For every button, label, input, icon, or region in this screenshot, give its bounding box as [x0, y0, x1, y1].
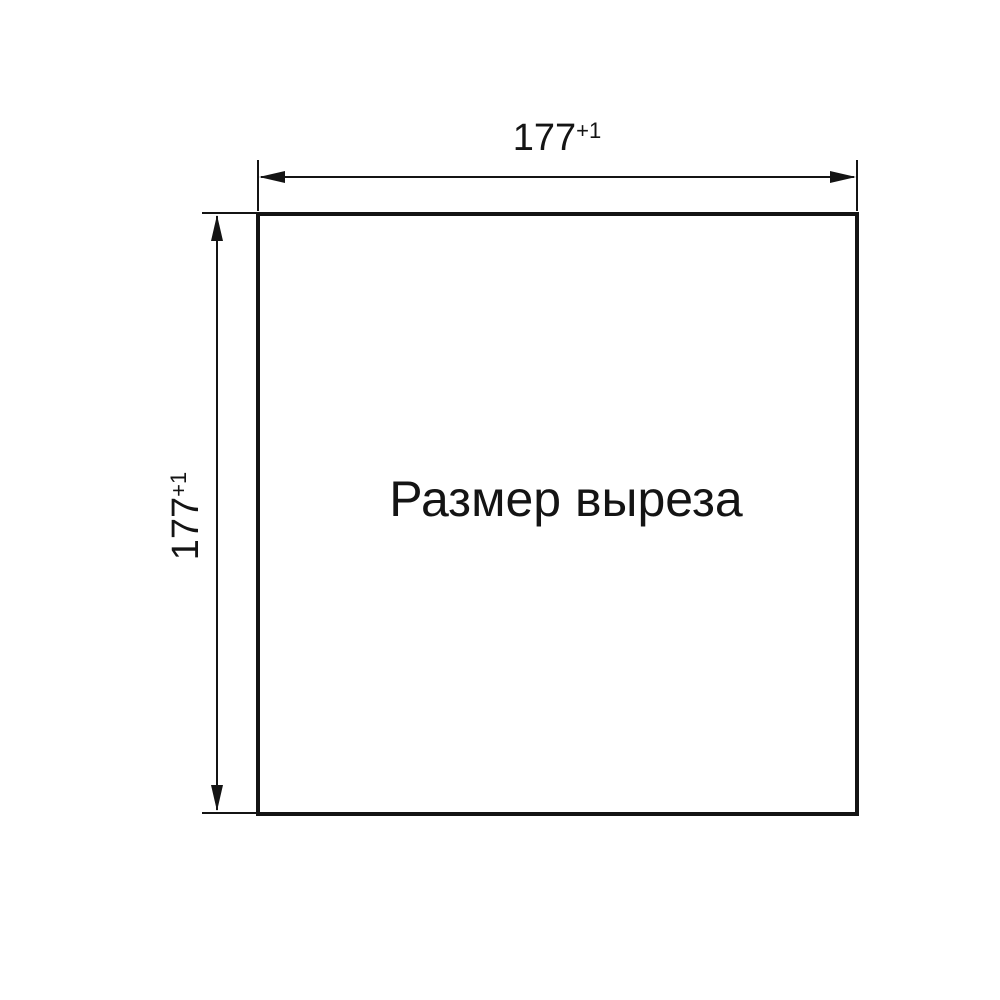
- left-dimension-tolerance: +1: [166, 472, 191, 497]
- left-dimension-value: 177: [165, 497, 207, 560]
- top-dimension-label: 177+1: [513, 119, 602, 157]
- arrow-left-icon: [259, 171, 285, 183]
- arrow-right-icon: [830, 171, 856, 183]
- top-dimension-value: 177: [513, 117, 576, 159]
- cutout-size-caption: Размер выреза: [389, 474, 743, 524]
- technical-drawing-canvas: 177+1 177+1 Размер выреза: [0, 0, 1000, 1000]
- left-dimension-label: 177+1: [167, 472, 205, 561]
- arrow-up-icon: [211, 215, 223, 241]
- top-dimension-tolerance: +1: [576, 118, 601, 143]
- arrow-down-icon: [211, 785, 223, 811]
